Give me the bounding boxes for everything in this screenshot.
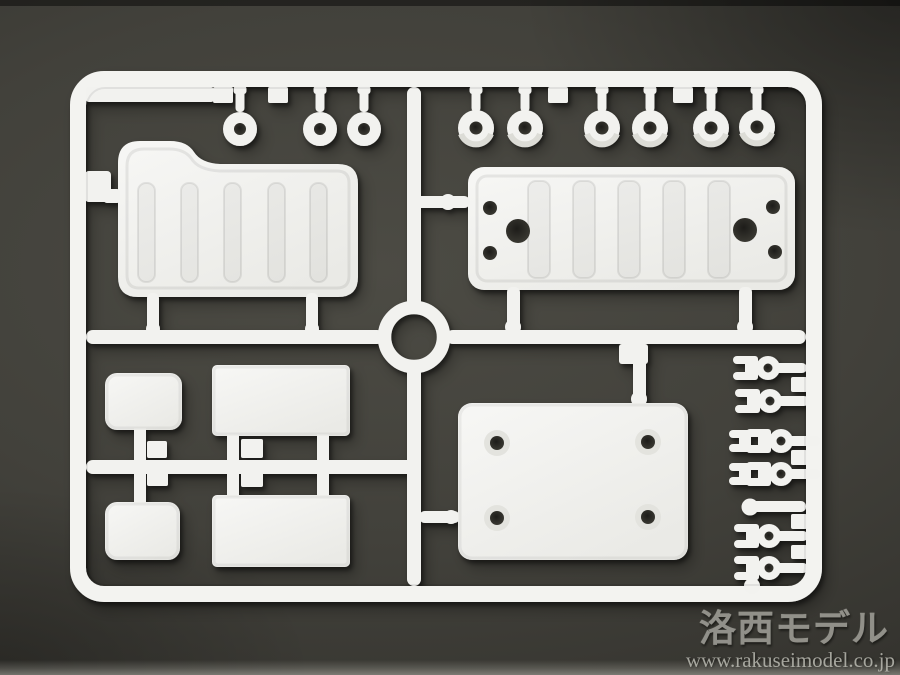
- watermark-title: 洛西モデル: [699, 598, 889, 652]
- plate-stem: [227, 434, 239, 462]
- plate-stem: [134, 472, 146, 504]
- sprue-illustration: [0, 0, 900, 675]
- plate-stem: [134, 428, 146, 462]
- runner-horizontal-right: [446, 330, 806, 344]
- plate-stem: [227, 472, 239, 497]
- photo-of-model-sprue: 洛西モデル www.rakuseimodel.co.jp: [0, 0, 900, 675]
- runner-vertical-top: [407, 87, 421, 308]
- runner-tab: [213, 87, 233, 103]
- runner-vertical-bottom: [407, 366, 421, 586]
- base-plate-with-holes: [458, 403, 688, 560]
- photo-bottom-edge: [0, 660, 900, 675]
- runner-block: [147, 441, 167, 458]
- runner-tab: [268, 87, 288, 103]
- runner-tab: [548, 87, 568, 103]
- runner-block: [241, 467, 263, 487]
- runner-tab: [673, 87, 693, 103]
- runner-block: [241, 439, 263, 458]
- plate-stem: [317, 434, 329, 462]
- runner-block: [147, 467, 168, 486]
- plate-stem: [317, 472, 329, 497]
- rectangular-plate-bottom: [212, 495, 350, 567]
- center-ring: [385, 308, 444, 367]
- gate-ball: [742, 499, 759, 516]
- small-rounded-plate-bottom: [105, 502, 180, 560]
- runner-horizontal-left: [86, 330, 384, 344]
- molded-label-tab: [86, 87, 214, 102]
- small-rounded-plate-top: [105, 373, 182, 430]
- grommet-group: [223, 86, 381, 146]
- rectangular-plate-top: [212, 365, 350, 436]
